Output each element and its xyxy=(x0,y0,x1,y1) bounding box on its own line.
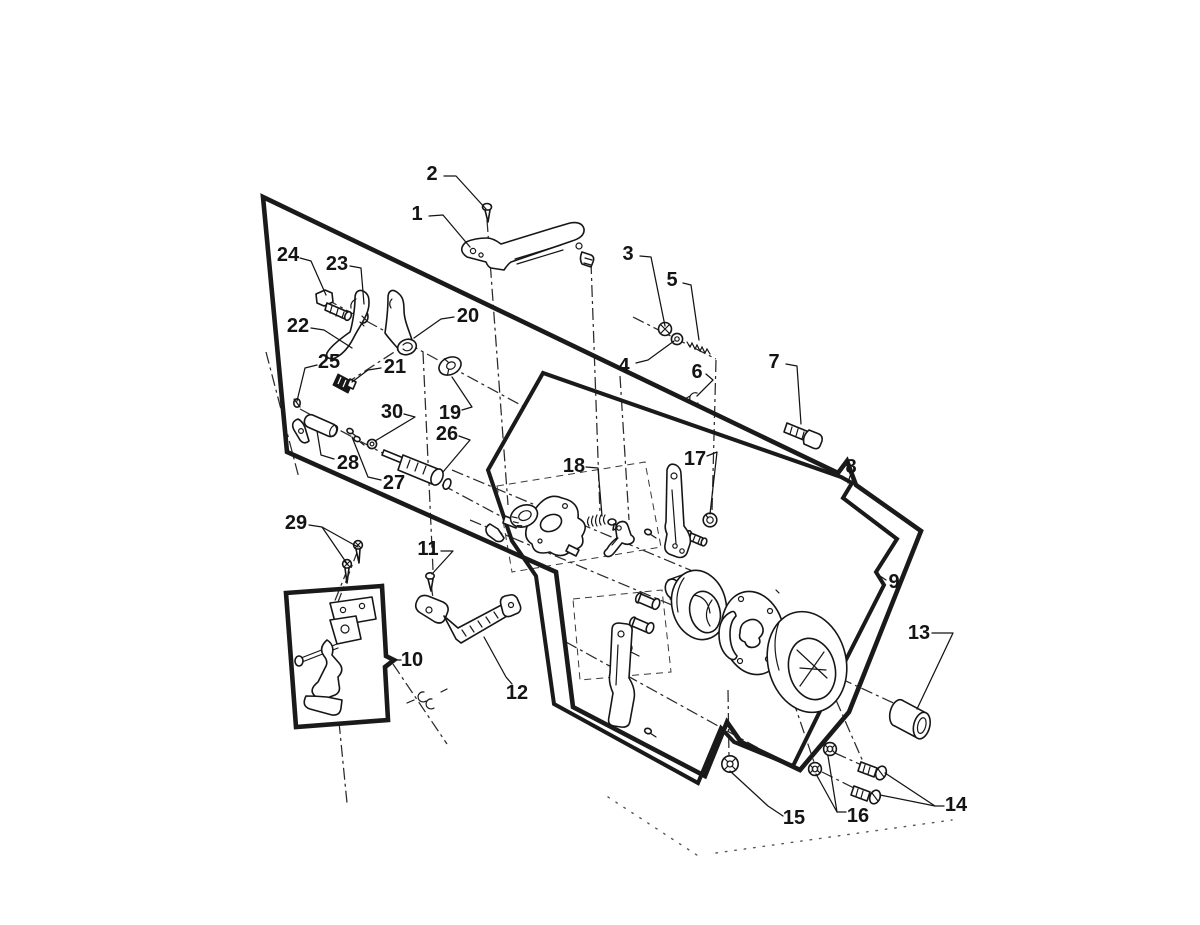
part-5-spring xyxy=(687,342,710,354)
callout-6-number: 6 xyxy=(691,361,702,383)
callout-28-number: 28 xyxy=(337,452,359,474)
callout-16-number: 16 xyxy=(847,805,869,827)
callout-15: 15 xyxy=(730,771,805,829)
callout-11: 11 xyxy=(417,538,453,574)
callout-3: 3 xyxy=(622,243,665,326)
callout-14-number: 14 xyxy=(945,794,968,816)
callout-1: 1 xyxy=(411,203,470,247)
callout-16-leader xyxy=(828,756,846,812)
callout-30-number: 30 xyxy=(381,401,403,423)
callout-13: 13 xyxy=(908,622,953,709)
callout-26: 26 xyxy=(436,423,470,472)
callout-3-leader xyxy=(640,256,665,326)
callout-11-number: 11 xyxy=(417,538,438,560)
callout-12-number: 12 xyxy=(506,682,528,704)
callout-6: 6 xyxy=(691,361,713,396)
part-13-bushing xyxy=(886,698,935,741)
callout-2: 2 xyxy=(426,163,486,209)
callout-14-leader xyxy=(885,773,944,806)
part-15-pushnut xyxy=(722,756,738,772)
part-10-box-contents xyxy=(295,597,376,715)
callout-4-number: 4 xyxy=(618,355,630,377)
part-11-screw xyxy=(426,573,434,591)
callout-1-number: 1 xyxy=(411,203,422,225)
callout-5-leader xyxy=(683,283,699,340)
callout-26-number: 26 xyxy=(436,423,458,445)
callout-30: 30 xyxy=(375,401,415,441)
callout-24: 24 xyxy=(277,244,326,295)
callout-21-number: 21 xyxy=(384,356,406,378)
part-4-washer xyxy=(671,333,682,344)
callout-29-leader xyxy=(322,527,348,565)
callout-21: 21 xyxy=(352,356,406,382)
callout-15-number: 15 xyxy=(783,807,805,829)
part-12-bent-rod xyxy=(416,595,521,643)
callout-5-number: 5 xyxy=(666,269,677,291)
part-14-screws xyxy=(851,762,888,805)
callout-12: 12 xyxy=(484,637,528,704)
callout-4-leader xyxy=(636,341,674,363)
callout-19: 19 xyxy=(439,377,472,424)
callout-24-number: 24 xyxy=(277,244,300,266)
part-vertical-link xyxy=(609,623,656,737)
callout-20: 20 xyxy=(414,305,479,338)
part-20-lever xyxy=(385,291,418,358)
callout-2-number: 2 xyxy=(426,163,437,185)
callout-18-number: 18 xyxy=(563,455,585,477)
part-bellcrank xyxy=(604,522,634,557)
callout-22-number: 22 xyxy=(287,315,309,337)
callout-13-leader xyxy=(917,633,953,709)
part-21-spring-screw xyxy=(333,374,356,393)
callout-25-leader xyxy=(297,365,317,401)
part-17-ring xyxy=(703,513,717,527)
callout-7: 7 xyxy=(768,351,801,424)
subassembly-group-boxes xyxy=(497,462,671,680)
callout-23-number: 23 xyxy=(326,253,348,275)
callout-29-number: 29 xyxy=(285,512,307,534)
callout-17-number: 17 xyxy=(684,448,706,470)
callout-4: 4 xyxy=(618,341,674,377)
diagram-canvas: 1234567891011121314151617181920212223242… xyxy=(0,0,1200,925)
callout-10: 10 xyxy=(394,649,423,671)
callout-10-number: 10 xyxy=(401,649,423,671)
exploded-parts-diagram: 1234567891011121314151617181920212223242… xyxy=(0,0,1200,925)
part-7-bolt xyxy=(784,423,822,449)
part-retainer-clips xyxy=(407,689,447,709)
callout-19-number: 19 xyxy=(439,402,461,424)
callout-20-leader xyxy=(414,317,454,338)
callout-7-leader xyxy=(786,364,801,424)
callout-14: 14 xyxy=(880,773,968,816)
callout-20-number: 20 xyxy=(457,305,479,327)
part-28-barrel-pin xyxy=(293,413,340,443)
callout-9-number: 9 xyxy=(888,571,899,593)
callout-1-leader xyxy=(429,215,470,247)
part-small-screw-mid xyxy=(644,528,656,538)
phantom-axis-lines xyxy=(266,220,952,859)
callout-7-number: 7 xyxy=(768,351,779,373)
part-1-bracket-arm xyxy=(462,223,594,270)
part-27-screws xyxy=(346,428,364,445)
callout-29: 29 xyxy=(285,512,358,565)
callout-15-leader xyxy=(730,771,783,816)
callout-27-number: 27 xyxy=(383,472,405,494)
part-governor-plate xyxy=(526,496,585,556)
callout-8-number: 8 xyxy=(845,456,856,478)
part-governor-arm xyxy=(665,464,691,557)
callout-24-leader xyxy=(300,258,326,295)
callout-2-leader xyxy=(444,176,486,209)
callout-12-leader xyxy=(484,637,512,684)
callout-3-number: 3 xyxy=(622,243,633,265)
callout-25: 25 xyxy=(297,351,340,401)
part-19-slotted-disc xyxy=(436,353,464,379)
callout-25-number: 25 xyxy=(318,351,340,373)
part-24-shoulder-bolt xyxy=(316,290,353,321)
callout-13-number: 13 xyxy=(908,622,930,644)
